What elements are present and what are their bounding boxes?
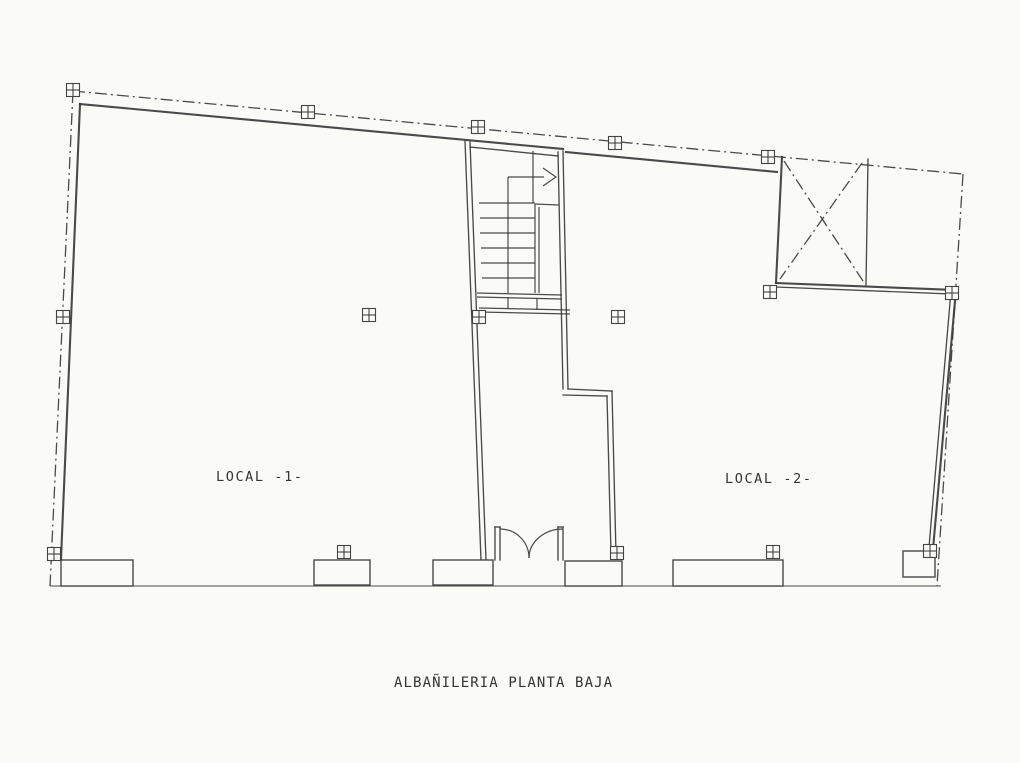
boundary-top [73,91,963,174]
patio-shaft [780,159,868,285]
column-marker-icon [472,121,485,134]
facade-pier [565,561,622,586]
hall-right-wall-upper-a [558,152,563,389]
front-facade-local-1 [80,104,563,149]
column-marker-icon [762,151,775,164]
hall-right-wall-jog-a [568,389,612,391]
facade-pier [433,560,493,585]
boundary-right [937,174,963,586]
front-facade-local-2 [566,152,777,172]
column-marker-icon [48,548,61,561]
stair-direction-arrow [508,168,556,186]
column-marker-icon [338,546,351,559]
column-marker-icon [767,546,780,559]
door-jamb-right [558,527,563,560]
door-swing-arc-left [500,529,529,558]
drawing-title: ALBAÑILERIA PLANTA BAJA [394,674,613,691]
column-marker-icon [612,311,625,324]
column-marker-icon [946,287,959,300]
stair-treads [479,203,535,278]
stair-lower-landing [477,293,570,314]
stair-upper-flight [535,204,559,293]
patio-left-wall [776,157,782,283]
storefront-piers [61,551,935,586]
column-marker-icon [764,286,777,299]
patio-divider-wall [866,159,868,285]
hall-right-wall-jog-b [563,395,607,396]
entrance-door [495,527,563,560]
column-marker-icon [67,84,80,97]
left-party-wall [61,104,80,559]
floor-plan-drawing: LOCAL -1- LOCAL -2- ALBAÑILERIA PLANTA B… [0,0,1020,763]
right-party-wall [933,290,956,549]
column-marker-icon [473,311,486,324]
hall-right-wall-upper-b [563,151,568,389]
column-marker-icon [57,311,70,324]
column-markers [48,84,959,561]
room-label-local-2: LOCAL -2- [725,471,813,487]
facade-pier [314,560,370,585]
column-marker-icon [609,137,622,150]
staircase [477,151,570,314]
exterior-walls [61,104,956,559]
hall-right-wall-lower-a [612,391,616,554]
diagonal-cross-icon [780,161,863,281]
column-marker-icon [924,545,937,558]
hall-right-wall-lower-b [607,396,611,554]
column-marker-icon [302,106,315,119]
property-boundary [50,91,963,586]
facade-pier [61,560,133,586]
column-marker-icon [611,547,624,560]
facade-pier [673,560,783,586]
column-marker-icon [363,309,376,322]
room-label-local-1: LOCAL -1- [216,469,304,485]
door-jamb-left [495,527,500,560]
